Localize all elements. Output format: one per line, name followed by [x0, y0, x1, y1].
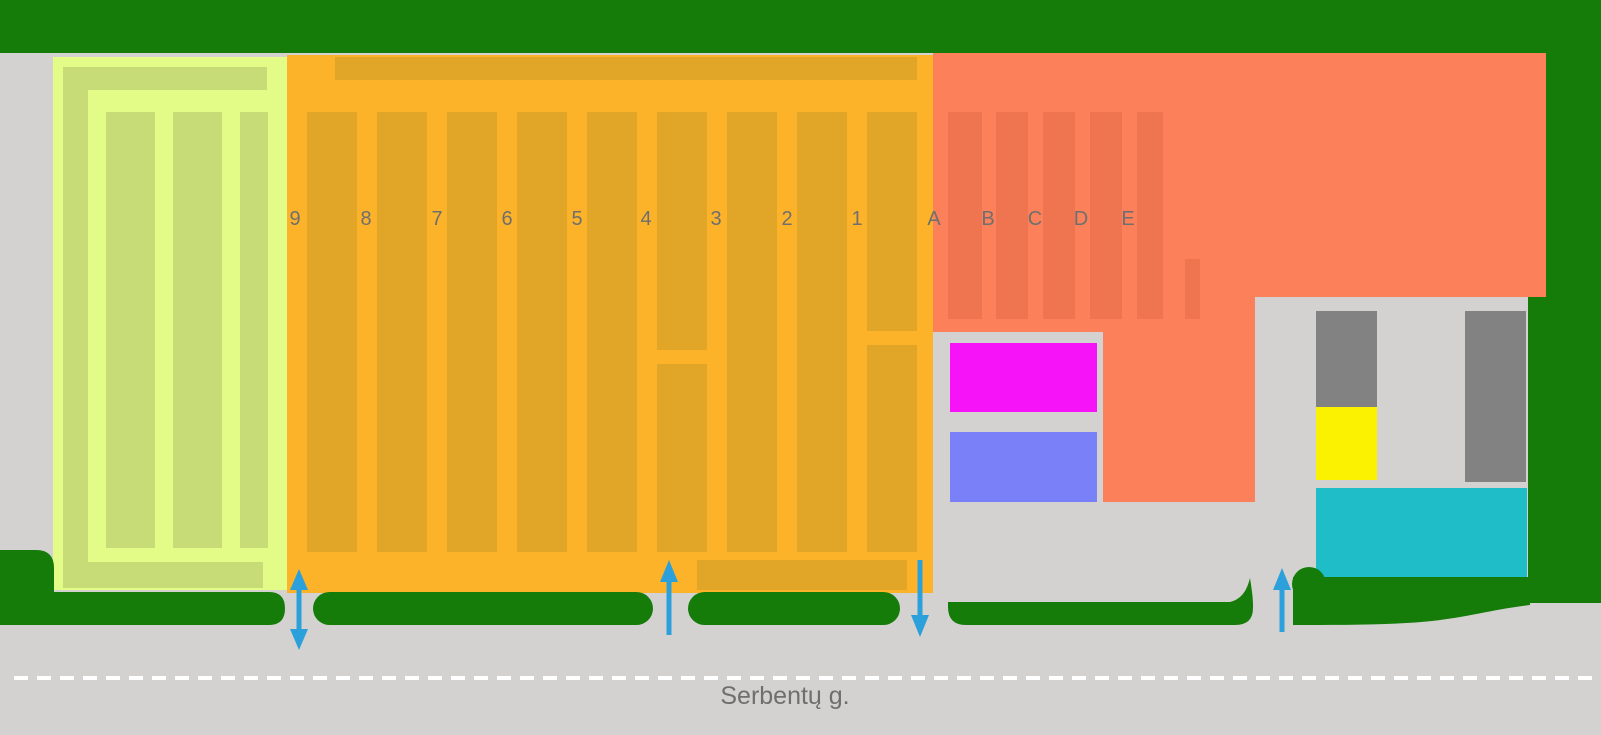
- row-label-2: 2: [781, 208, 792, 230]
- stripe: [1185, 259, 1200, 319]
- hedge-strip-1: [0, 592, 285, 625]
- stripe: [173, 112, 222, 548]
- row-label-B: B: [981, 208, 994, 230]
- row-label-A: A: [927, 208, 941, 230]
- row-label-7: 7: [431, 208, 442, 230]
- stripe: [240, 112, 268, 548]
- row-label-E: E: [1121, 208, 1134, 230]
- street-name-label: Serbentų g.: [720, 682, 849, 710]
- row-label-8: 8: [360, 208, 371, 230]
- row-label-5: 5: [571, 208, 582, 230]
- stripe: [307, 112, 357, 552]
- periwinkle-building: [950, 432, 1097, 502]
- teal-building: [1316, 488, 1527, 577]
- row-label-9: 9: [289, 208, 300, 230]
- stripe: [447, 112, 497, 552]
- stripe: [587, 112, 637, 552]
- stripe: [63, 67, 267, 90]
- stripe: [63, 67, 88, 588]
- right-hedge-lower: [1528, 297, 1601, 603]
- stripe: [517, 112, 567, 552]
- stripe: [657, 112, 707, 552]
- site-map: 9 8 7 6 5 4 3 2 1 A B C D E Serbentų g.: [0, 0, 1601, 735]
- stripe: [106, 112, 155, 548]
- top-hedge: [0, 0, 1601, 53]
- gray-building-left: [1316, 311, 1377, 407]
- row-label-1: 1: [851, 208, 862, 230]
- stripe: [996, 112, 1028, 319]
- orange-row-gap: [655, 350, 709, 364]
- stripe: [335, 57, 917, 80]
- stripe: [1090, 112, 1122, 319]
- stripe: [63, 562, 263, 588]
- gray-building-right: [1465, 311, 1526, 482]
- magenta-building: [950, 343, 1097, 412]
- stripe: [377, 112, 427, 552]
- stripe: [1137, 112, 1163, 319]
- yellow-building: [1316, 407, 1377, 480]
- right-hedge-upper: [1546, 53, 1601, 297]
- row-label-C: C: [1028, 208, 1042, 230]
- row-label-4: 4: [640, 208, 651, 230]
- orange-zone-stripes: [307, 57, 917, 590]
- hedge-strip-3: [688, 592, 900, 625]
- stripe: [1043, 112, 1075, 319]
- orange-row-gap: [865, 331, 919, 345]
- stripe: [697, 560, 907, 590]
- stripe: [948, 112, 982, 319]
- stripe: [727, 112, 777, 552]
- row-label-6: 6: [501, 208, 512, 230]
- stripe: [797, 112, 847, 552]
- row-label-3: 3: [710, 208, 721, 230]
- row-label-D: D: [1074, 208, 1088, 230]
- hedge-strip-2: [313, 592, 653, 625]
